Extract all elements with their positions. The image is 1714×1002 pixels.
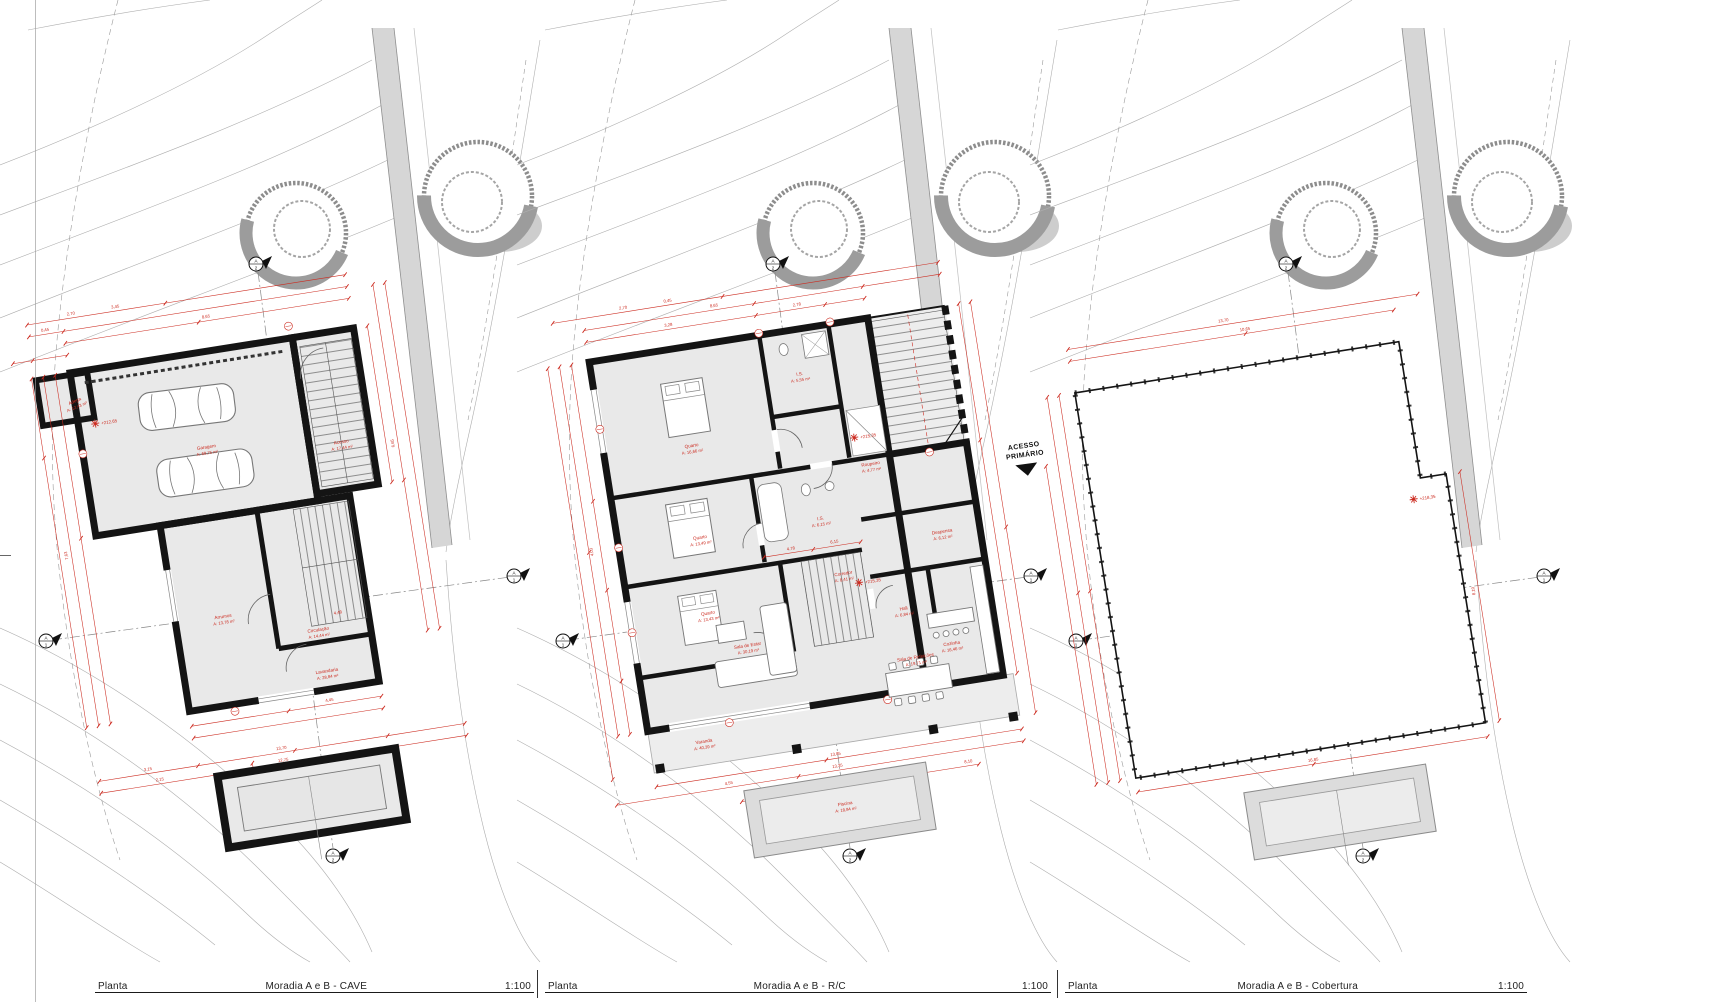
svg-text:6,65: 6,65	[389, 438, 395, 447]
titleblock-drawing-name: Moradia A e B - CAVE	[265, 981, 367, 992]
floor-plan-rc: Quarto A: 16,66 m² I.S. A: 5,55 m² Roupe…	[540, 251, 1042, 821]
svg-text:8,10: 8,10	[1470, 586, 1476, 595]
pool-rc: Piscina A: 18,84 m²	[744, 762, 936, 858]
svg-text:3,45: 3,45	[111, 303, 120, 309]
svg-text:8,65: 8,65	[709, 302, 718, 308]
svg-text:2,70: 2,70	[66, 310, 75, 316]
svg-text:13,35: 13,35	[832, 762, 844, 769]
svg-text:16,85: 16,85	[1308, 756, 1320, 763]
wardrobe-icon	[846, 405, 887, 456]
svg-text:4,03: 4,03	[588, 547, 594, 556]
svg-text:2,70: 2,70	[619, 304, 628, 310]
svg-text:8,65: 8,65	[201, 313, 210, 319]
titleblock-label: Planta	[1068, 981, 1098, 992]
pool-cobertura	[1244, 764, 1440, 880]
roof-outline	[1075, 338, 1486, 779]
pool-cave	[217, 748, 410, 873]
svg-text:0,45: 0,45	[663, 297, 672, 303]
svg-text:13,70: 13,70	[1218, 317, 1230, 324]
titleblock-cobertura: Planta Moradia A e B - Cobertura 1:100	[1065, 977, 1527, 993]
svg-text:0,45: 0,45	[41, 327, 50, 333]
plan-sheet: A 1 A 2	[0, 0, 1714, 1002]
titleblock-scale: 1:100	[1022, 981, 1048, 992]
titleblock-label: Planta	[98, 981, 128, 992]
svg-text:13,85: 13,85	[830, 751, 842, 758]
svg-text:3,28: 3,28	[664, 322, 673, 328]
titleblock-rc: Planta Moradia A e B - R/C 1:100	[545, 977, 1051, 993]
svg-text:3,15: 3,15	[144, 766, 153, 772]
titleblock-scale: 1:100	[1498, 981, 1524, 992]
titleblock-label: Planta	[548, 981, 578, 992]
titleblock-drawing-name: Moradia A e B - Cobertura	[1237, 981, 1358, 992]
access-arrow-icon	[1015, 462, 1038, 477]
svg-text:I.S.: I.S.	[817, 515, 825, 521]
access-annotation: ACESSO PRIMÁRIO	[1004, 440, 1047, 478]
sheet-edge-tick	[0, 555, 11, 556]
titleblock-divider	[537, 970, 538, 998]
drawing-canvas: A 1 A 2	[0, 0, 1714, 1002]
svg-text:4,55: 4,55	[724, 780, 733, 786]
svg-text:2,78: 2,78	[792, 301, 801, 307]
svg-text:8,10: 8,10	[964, 758, 973, 764]
svg-text:13,70: 13,70	[276, 745, 288, 752]
titleblock-scale: 1:100	[505, 981, 531, 992]
titleblock-cave: Planta Moradia A e B - CAVE 1:100	[95, 977, 534, 993]
svg-text:I.S.: I.S.	[796, 371, 804, 377]
titleblock-drawing-name: Moradia A e B - R/C	[754, 981, 846, 992]
titleblock-divider	[1057, 970, 1058, 998]
svg-text:2,15: 2,15	[155, 776, 164, 782]
sheet-border-line	[35, 0, 36, 1002]
roof-plan-cobertura: +218,35 13,70 10,65 16,85 8,10	[1027, 285, 1501, 798]
svg-text:4,45: 4,45	[325, 697, 334, 703]
svg-text:7,63: 7,63	[63, 551, 69, 560]
svg-text:10,65: 10,65	[1239, 326, 1251, 333]
